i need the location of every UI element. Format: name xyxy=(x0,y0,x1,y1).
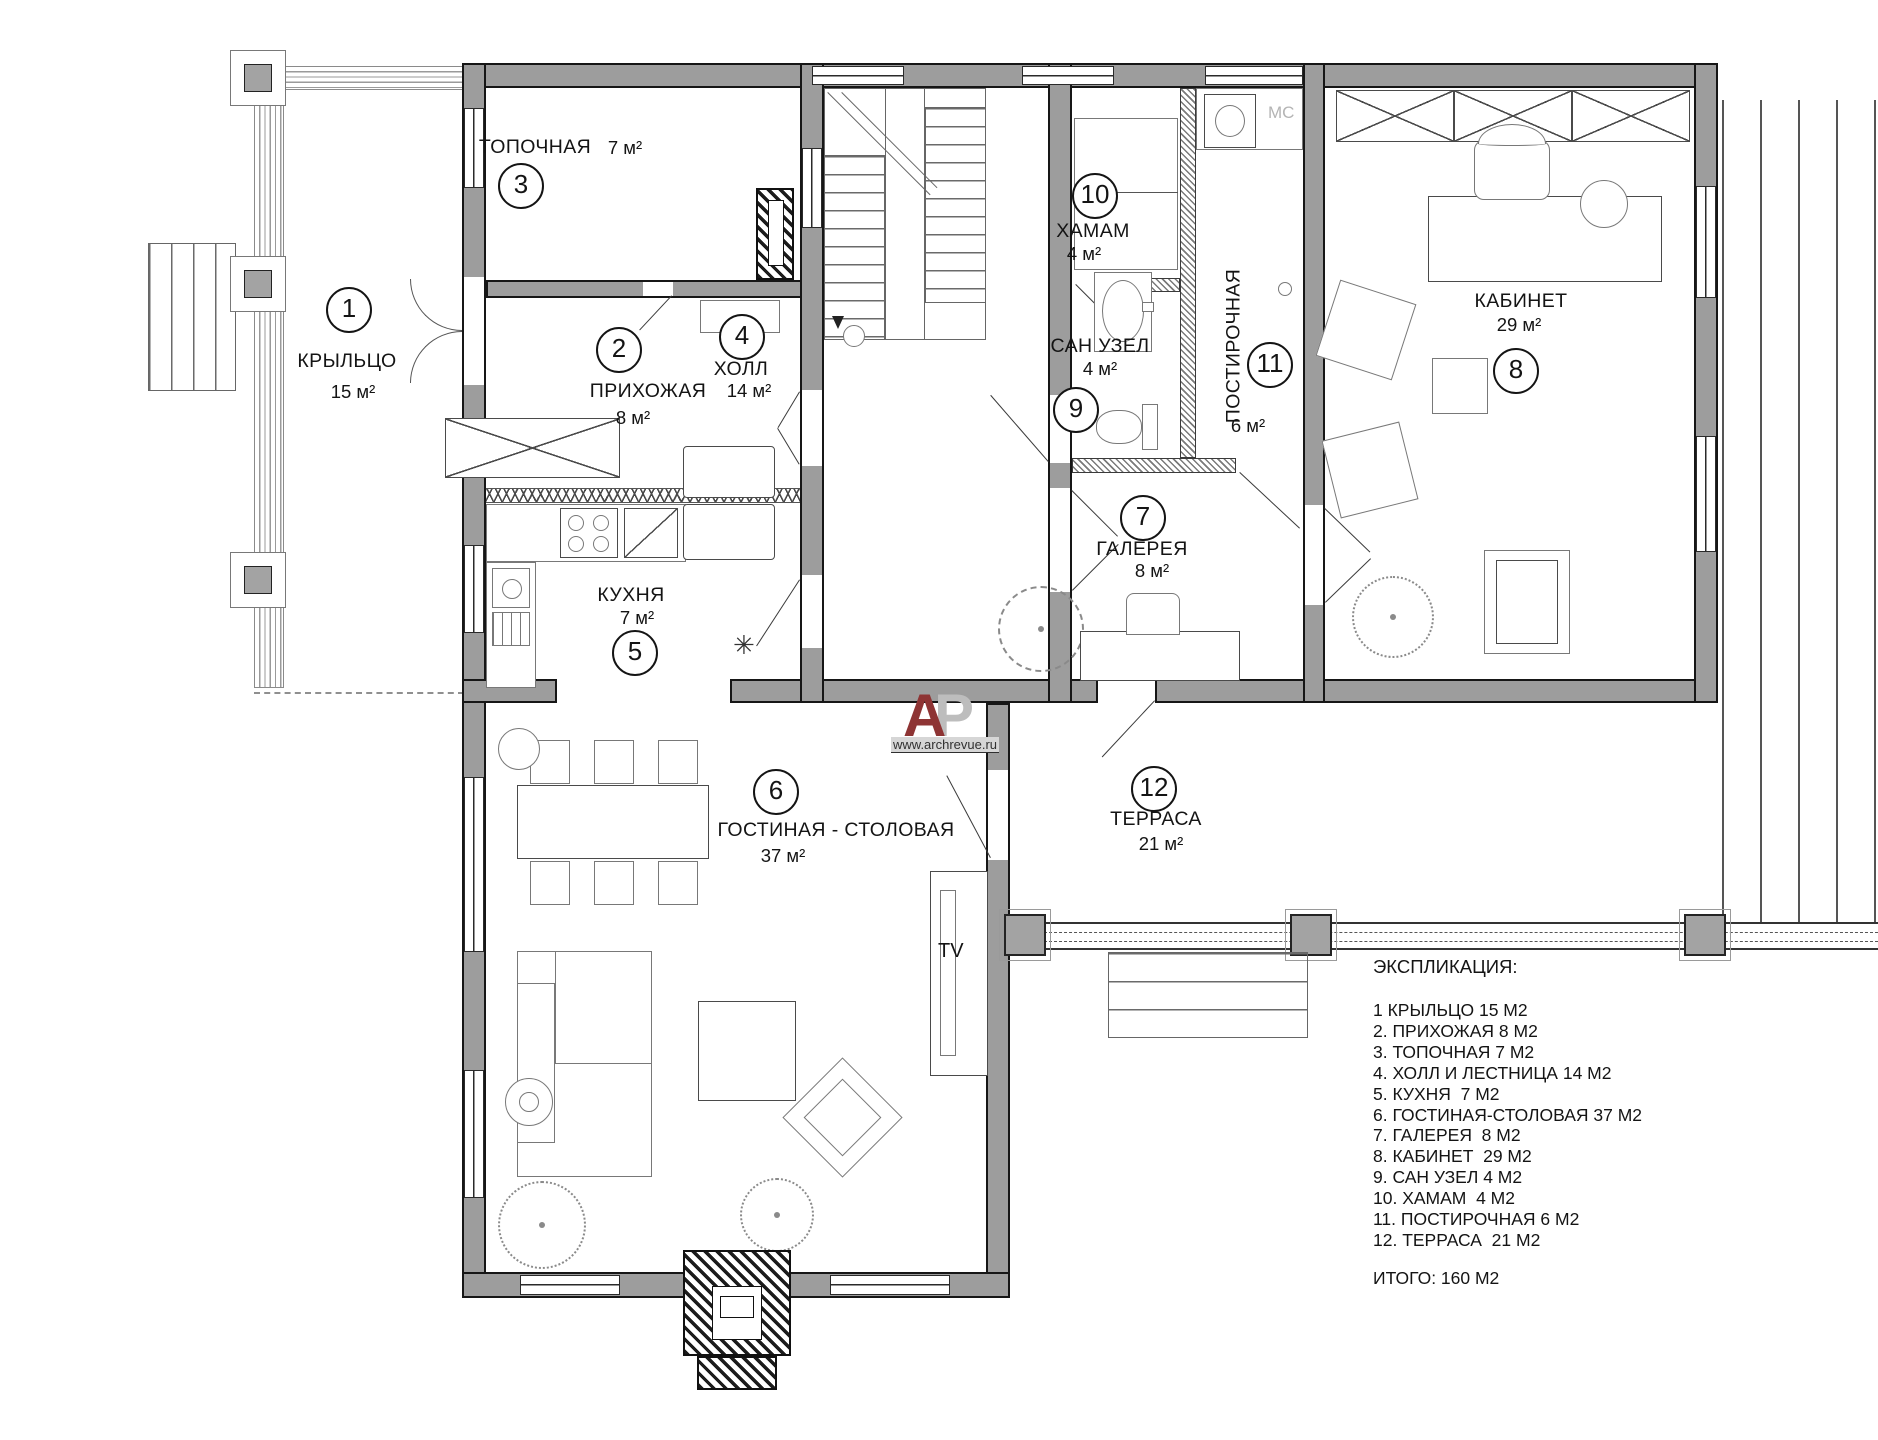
room-area-hallway: 8 м² xyxy=(616,407,650,429)
office-chair xyxy=(1474,140,1550,200)
plant-pot xyxy=(498,728,540,770)
legend-item: 8. КАБИНЕТ 29 М2 xyxy=(1373,1146,1642,1167)
chaise-lounge-seat xyxy=(1496,560,1558,644)
coffee-table xyxy=(1432,358,1488,414)
deck-board-line xyxy=(1760,100,1762,922)
room-area-porch: 15 м² xyxy=(331,381,376,403)
kitchen-symbol: ✳ xyxy=(733,630,755,661)
room-number-wc: 9 xyxy=(1053,387,1099,433)
kitchen-cabinet xyxy=(624,508,678,558)
room-area-terrace: 21 м² xyxy=(1139,833,1184,855)
room-area-hammam: 4 м² xyxy=(1067,243,1101,265)
toilet-tank xyxy=(1142,404,1158,450)
room-area-hall: 14 м² xyxy=(727,380,772,402)
coffee-table xyxy=(698,1001,796,1101)
stair-flight-left xyxy=(824,155,885,340)
door-opening-kitchen xyxy=(802,575,822,648)
porch-column xyxy=(230,552,286,608)
wardrobe xyxy=(1572,90,1690,142)
porch-floor-edge xyxy=(254,692,464,694)
door-opening-office xyxy=(1305,505,1323,605)
legend-total: ИТОГО: 160 М2 xyxy=(1373,1268,1499,1289)
washbasin xyxy=(1102,280,1144,342)
stove xyxy=(560,508,618,558)
window xyxy=(520,1275,620,1295)
armchair xyxy=(1316,280,1417,381)
door-leaf xyxy=(777,428,799,465)
room-area-wc: 4 м² xyxy=(1083,358,1117,380)
legend-item: 7. ГАЛЕРЕЯ 8 М2 xyxy=(1373,1125,1642,1146)
room-name-gallery: ГАЛЕРЕЯ xyxy=(1096,538,1187,561)
room-name-laundry: ПОСТИРОЧНАЯ xyxy=(1223,269,1246,423)
floor-drain xyxy=(1278,282,1292,296)
room-name-hallway: ПРИХОЖАЯ xyxy=(590,380,706,403)
door-opening-hallway xyxy=(802,390,822,466)
room-number-boiler: 3 xyxy=(498,163,544,209)
door-leaf xyxy=(639,295,672,330)
dining-table xyxy=(517,785,709,859)
washbasin-tap xyxy=(1142,302,1154,312)
wall-office-right xyxy=(1694,63,1718,703)
legend-item: 3. ТОПОЧНАЯ 7 М2 xyxy=(1373,1042,1642,1063)
terrace-post xyxy=(1004,914,1046,956)
window xyxy=(464,777,484,952)
deck-board-line xyxy=(1722,100,1724,922)
dining-chair xyxy=(594,861,634,905)
door-leaf xyxy=(946,775,991,858)
room-name-living: ГОСТИНАЯ - СТОЛОВАЯ xyxy=(718,819,955,842)
porch-steps xyxy=(148,243,236,391)
dish-rack xyxy=(492,612,530,646)
washer-label: МС xyxy=(1268,103,1294,123)
room-name-boiler: ТОПОЧНАЯ xyxy=(479,136,591,159)
hall-armchair xyxy=(683,504,775,560)
room-name-office: КАБИНЕТ xyxy=(1475,290,1568,313)
window xyxy=(1205,66,1303,85)
wall-laundry-right xyxy=(1303,63,1325,703)
room-number-office: 8 xyxy=(1493,348,1539,394)
armchair xyxy=(1322,422,1419,519)
fireplace-base xyxy=(697,1356,777,1390)
room-number-gallery: 7 xyxy=(1120,495,1166,541)
room-number-hammam: 10 xyxy=(1072,173,1118,219)
room-name-hammam: ХАМАМ xyxy=(1056,220,1130,243)
room-number-porch: 1 xyxy=(326,287,372,333)
tv-panel xyxy=(940,890,956,1056)
porch-door-leaf xyxy=(410,279,462,331)
window xyxy=(1696,186,1716,298)
side-table xyxy=(1580,180,1628,228)
room-number-laundry: 11 xyxy=(1247,342,1293,388)
washer xyxy=(1204,94,1256,148)
floor-plan: ✳ МС TV xyxy=(0,0,1878,1440)
window xyxy=(464,545,484,633)
chimney-flue xyxy=(768,200,784,266)
room-area-laundry: 6 м² xyxy=(1231,415,1265,437)
window xyxy=(464,1070,484,1198)
window xyxy=(1022,66,1114,85)
window xyxy=(802,148,822,228)
deck-board-line xyxy=(1836,100,1838,922)
legend-item: 4. ХОЛЛ И ЛЕСТНИЦА 14 М2 xyxy=(1373,1063,1642,1084)
legend-item: 2. ПРИХОЖАЯ 8 М2 xyxy=(1373,1021,1642,1042)
room-name-terrace: ТЕРРАСА xyxy=(1110,808,1202,831)
door-opening-porch xyxy=(464,277,484,385)
stair-flight-right xyxy=(925,107,986,303)
room-number-hallway: 2 xyxy=(596,327,642,373)
wall-wc-laundry xyxy=(1180,88,1196,458)
side-table-inner xyxy=(519,1092,539,1112)
door-leaf xyxy=(1239,472,1300,529)
gallery-chair xyxy=(1126,593,1180,635)
room-number-hall: 4 xyxy=(719,314,765,360)
sofa-cushion xyxy=(555,951,652,1064)
stair-arrow xyxy=(832,316,844,329)
door-leaf xyxy=(756,579,800,646)
tv-label: TV xyxy=(938,940,964,963)
porch-door-leaf xyxy=(410,331,462,383)
terrace-railing xyxy=(1044,922,1878,950)
door-leaf xyxy=(778,391,800,428)
stair-stringer xyxy=(885,88,925,340)
deck-board-line xyxy=(1874,100,1876,922)
gallery-desk xyxy=(1080,631,1240,681)
dining-chair xyxy=(658,740,698,784)
room-area-boiler: 7 м² xyxy=(608,137,642,159)
room-name-porch: КРЫЛЬЦО xyxy=(297,350,396,373)
room-number-kitchen: 5 xyxy=(612,630,658,676)
room-name-hall: ХОЛЛ xyxy=(714,358,769,381)
plant xyxy=(1352,576,1434,658)
dining-chair xyxy=(530,861,570,905)
terrace-post xyxy=(1684,914,1726,956)
door-opening-terrace-living xyxy=(988,770,1008,860)
door-leaf xyxy=(990,395,1048,462)
terrace-post xyxy=(1290,914,1332,956)
dining-chair xyxy=(594,740,634,784)
logo-url: www.archrevue.ru xyxy=(891,737,999,753)
plant xyxy=(740,1178,814,1252)
window xyxy=(830,1275,950,1295)
room-number-living: 6 xyxy=(753,769,799,815)
toilet-bowl xyxy=(1096,410,1142,444)
room-area-gallery: 8 м² xyxy=(1135,560,1169,582)
legend-item: 11. ПОСТИРОЧНАЯ 6 М2 xyxy=(1373,1209,1642,1230)
plant xyxy=(498,1181,586,1269)
door-leaf xyxy=(1102,700,1155,757)
legend-list: 1 КРЫЛЬЦО 15 М2 2. ПРИХОЖАЯ 8 М2 3. ТОПО… xyxy=(1373,1000,1642,1251)
dining-chair xyxy=(658,861,698,905)
legend-item: 6. ГОСТИНАЯ-СТОЛОВАЯ 37 М2 xyxy=(1373,1105,1642,1126)
legend-item: 5. КУХНЯ 7 М2 xyxy=(1373,1084,1642,1105)
terrace-steps xyxy=(1108,952,1308,1038)
window xyxy=(1696,436,1716,552)
room-number-terrace: 12 xyxy=(1131,766,1177,812)
room-area-living: 37 м² xyxy=(761,845,806,867)
tree xyxy=(998,586,1084,672)
wall-middle xyxy=(1155,679,1718,703)
wardrobe xyxy=(1336,90,1454,142)
porch-column xyxy=(230,50,286,106)
legend-item: 10. ХАМАМ 4 М2 xyxy=(1373,1188,1642,1209)
room-area-office: 29 м² xyxy=(1497,314,1542,336)
door-opening-boiler xyxy=(643,282,673,296)
hall-armchair xyxy=(683,446,775,498)
legend-item: 9. САН УЗЕЛ 4 М2 xyxy=(1373,1167,1642,1188)
legend-item: 12. ТЕРРАСА 21 М2 xyxy=(1373,1230,1642,1251)
wardrobe xyxy=(445,418,620,478)
legend-item: 1 КРЫЛЬЦО 15 М2 xyxy=(1373,1000,1642,1021)
fireplace-insert xyxy=(720,1296,754,1318)
wall-gallery-top xyxy=(1072,458,1236,473)
porch-column xyxy=(230,256,286,312)
sink xyxy=(492,568,530,608)
room-name-wc: САН УЗЕЛ xyxy=(1051,335,1150,358)
stair-newel xyxy=(843,325,865,347)
door-leaf xyxy=(1071,490,1118,537)
room-area-kitchen: 7 м² xyxy=(620,607,654,629)
room-name-kitchen: КУХНЯ xyxy=(597,584,664,607)
legend-title: ЭКСПЛИКАЦИЯ: xyxy=(1373,956,1518,978)
window xyxy=(812,66,904,85)
tv-cabinet xyxy=(930,871,988,1076)
deck-board-line xyxy=(1798,100,1800,922)
door-opening-gallery xyxy=(1050,488,1070,592)
